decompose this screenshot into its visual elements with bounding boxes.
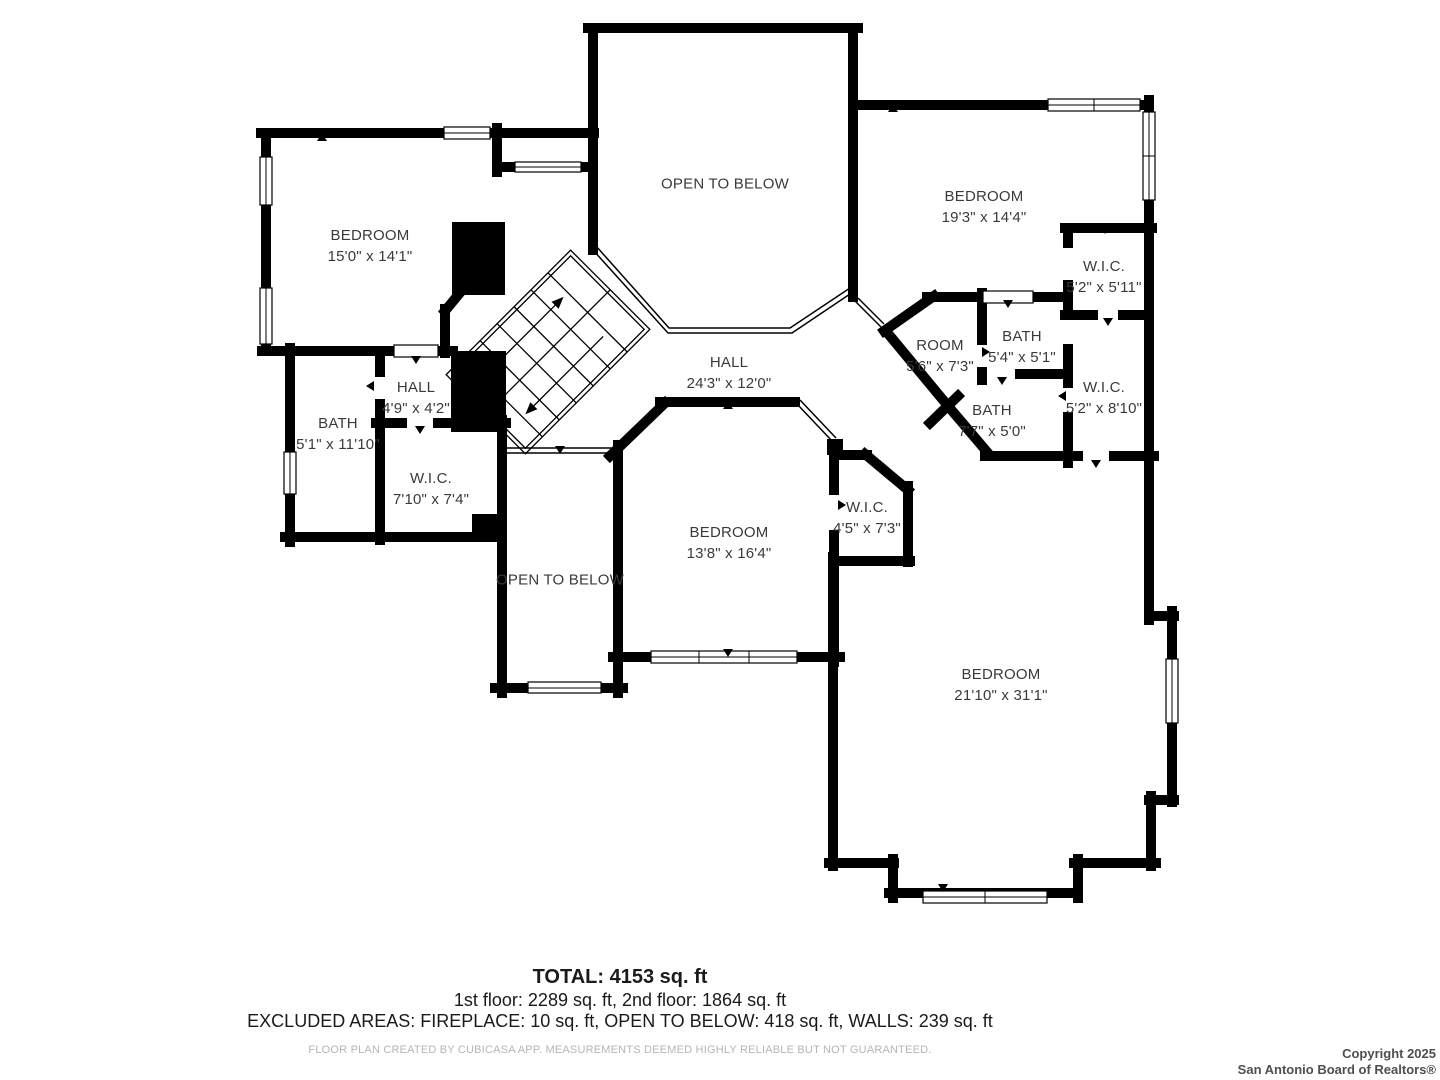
room-dims: 13'8" x 16'4"	[687, 543, 772, 564]
window	[1048, 99, 1140, 111]
window	[260, 288, 272, 344]
room-name: W.I.C.	[393, 468, 469, 489]
room-label-hall-small: HALL 4'9" x 4'2"	[382, 377, 450, 419]
floor-plan-page: BEDROOM 15'0" x 14'1" OPEN TO BELOW BEDR…	[0, 0, 1440, 1080]
window	[651, 651, 797, 663]
copyright-year: Copyright 2025	[1238, 1046, 1436, 1062]
room-dims: 7'7" x 5'0"	[958, 421, 1026, 442]
room-label-hall-main: HALL 24'3" x 12'0"	[687, 352, 772, 394]
floor-areas-text: 1st floor: 2289 sq. ft, 2nd floor: 1864 …	[0, 990, 1240, 1011]
room-name: W.I.C.	[833, 497, 901, 518]
window	[515, 162, 581, 172]
window	[923, 891, 1047, 903]
room-name: HALL	[687, 352, 772, 373]
room-dims: 5'4" x 5'1"	[988, 347, 1056, 368]
walls-layer	[261, 28, 1174, 898]
window	[528, 682, 601, 693]
room-label-wic-1: W.I.C. 5'2" x 5'11"	[1066, 256, 1141, 298]
room-label-wic-3: W.I.C. 7'10" x 7'4"	[393, 468, 469, 510]
room-label-bath-3: BATH 5'1" x 11'10"	[296, 413, 380, 455]
room-name: ROOM	[906, 335, 974, 356]
room-name: BEDROOM	[328, 225, 413, 246]
room-label-bedroom-top-left: BEDROOM 15'0" x 14'1"	[328, 225, 413, 267]
window	[284, 452, 296, 494]
room-dims: 19'3" x 14'4"	[942, 207, 1027, 228]
open-edges-layer	[505, 246, 884, 453]
room-label-bedroom-center: BEDROOM 13'8" x 16'4"	[687, 522, 772, 564]
fireplace-chase	[452, 222, 505, 295]
room-name: BATH	[988, 326, 1056, 347]
room-dims: 5'2" x 8'10"	[1066, 398, 1142, 419]
room-dims: 21'10" x 31'1"	[954, 685, 1047, 706]
room-label-open-to-below-left: OPEN TO BELOW	[496, 570, 624, 591]
room-name: HALL	[382, 377, 450, 398]
excluded-areas-text: EXCLUDED AREAS: FIREPLACE: 10 sq. ft, OP…	[0, 1011, 1240, 1032]
room-label-open-to-below-top: OPEN TO BELOW	[661, 174, 789, 195]
room-label-wic-2: W.I.C. 5'2" x 8'10"	[1066, 377, 1142, 419]
copyright-org: San Antonio Board of Realtors®	[1238, 1062, 1436, 1078]
room-name: W.I.C.	[1066, 256, 1141, 277]
room-name: BATH	[958, 400, 1026, 421]
room-dims: 7'10" x 7'4"	[393, 489, 469, 510]
window	[260, 157, 272, 205]
room-dims: 4'5" x 7'3"	[833, 518, 901, 539]
room-name: BEDROOM	[687, 522, 772, 543]
room-label-bath-1: BATH 5'4" x 5'1"	[988, 326, 1056, 368]
room-label-bedroom-top-right: BEDROOM 19'3" x 14'4"	[942, 186, 1027, 228]
disclaimer-text: FLOOR PLAN CREATED BY CUBICASA APP. MEAS…	[0, 1044, 1240, 1056]
room-dims: 24'3" x 12'0"	[687, 373, 772, 394]
room-dims: 15'0" x 14'1"	[328, 246, 413, 267]
room-dims: 5'6" x 7'3"	[906, 356, 974, 377]
cased-opening	[394, 345, 438, 357]
room-dims: 4'9" x 4'2"	[382, 398, 450, 419]
window	[1166, 659, 1178, 723]
room-label-room: ROOM 5'6" x 7'3"	[906, 335, 974, 377]
room-name: BEDROOM	[942, 186, 1027, 207]
window	[444, 127, 490, 139]
room-label-bedroom-master: BEDROOM 21'10" x 31'1"	[954, 664, 1047, 706]
room-name: OPEN TO BELOW	[661, 174, 789, 195]
room-name: BEDROOM	[954, 664, 1047, 685]
room-label-wic-4: W.I.C. 4'5" x 7'3"	[833, 497, 901, 539]
window	[1143, 112, 1155, 200]
room-name: BATH	[296, 413, 380, 434]
total-area-text: TOTAL: 4153 sq. ft	[0, 966, 1240, 989]
room-label-bath-2: BATH 7'7" x 5'0"	[958, 400, 1026, 442]
room-dims: 5'1" x 11'10"	[296, 434, 380, 455]
room-name: OPEN TO BELOW	[496, 570, 624, 591]
copyright-notice: Copyright 2025 San Antonio Board of Real…	[1238, 1046, 1436, 1078]
room-name: W.I.C.	[1066, 377, 1142, 398]
room-dims: 5'2" x 5'11"	[1066, 277, 1141, 298]
